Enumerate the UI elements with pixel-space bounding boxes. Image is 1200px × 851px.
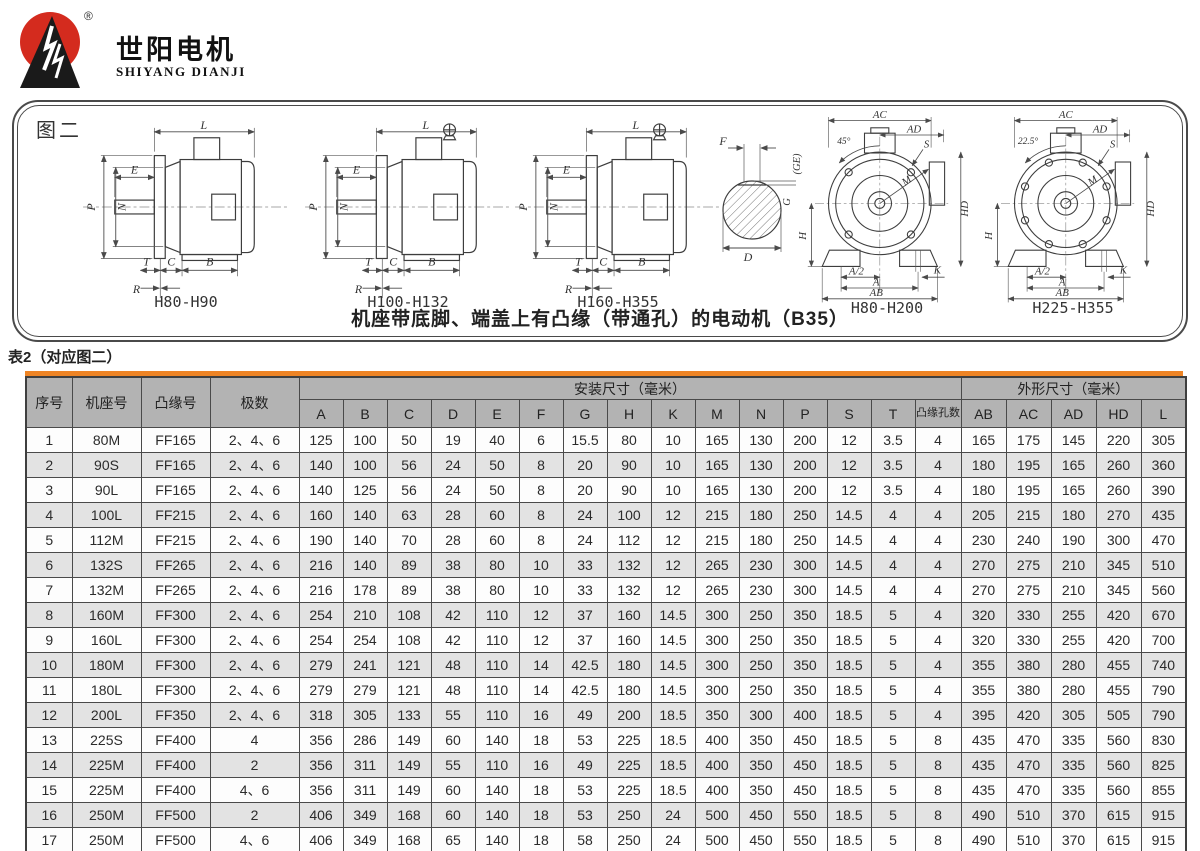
table-cell: 14.5 bbox=[651, 678, 695, 703]
table-row: 180MFF1652、4、6125100501940615.5801016513… bbox=[26, 428, 1186, 453]
table-cell: 70 bbox=[387, 528, 431, 553]
table-cell: 160 bbox=[607, 603, 651, 628]
table-cell: 56 bbox=[387, 478, 431, 503]
table-cell: 60 bbox=[475, 528, 519, 553]
table-cell: 355 bbox=[961, 653, 1006, 678]
table-cell: 8 bbox=[519, 503, 563, 528]
table-cell: 42 bbox=[431, 628, 475, 653]
table-cell: 180 bbox=[607, 653, 651, 678]
dim-label-R: R bbox=[354, 282, 363, 296]
table-row: 16250MFF50024063491686014018532502450045… bbox=[26, 803, 1186, 828]
column-header-flange: 凸缘号 bbox=[141, 377, 210, 428]
table-cell: 140 bbox=[475, 803, 519, 828]
table-cell: 28 bbox=[431, 503, 475, 528]
table-cell: 18.5 bbox=[827, 628, 871, 653]
table-cell: 280 bbox=[1051, 653, 1096, 678]
table-cell: 38 bbox=[431, 553, 475, 578]
table-cell: 560 bbox=[1096, 728, 1141, 753]
dim-label-F: F bbox=[718, 134, 727, 148]
table-cell: 8 bbox=[519, 478, 563, 503]
table-cell: 125 bbox=[299, 428, 343, 453]
table-header-row: 序号 机座号 凸缘号 极数 安装尺寸（毫米） 外形尺寸（毫米） bbox=[26, 377, 1186, 400]
table-cell: 140 bbox=[299, 478, 343, 503]
table-cell: 200 bbox=[783, 453, 827, 478]
table-cell: FF350 bbox=[141, 703, 210, 728]
dim-label-HD: HD bbox=[1145, 201, 1157, 218]
table-cell: 470 bbox=[1006, 728, 1051, 753]
table-cell: 4 bbox=[871, 503, 915, 528]
table-row: 14225MFF400235631114955110164922518.5400… bbox=[26, 753, 1186, 778]
dim-label-T: T bbox=[365, 254, 373, 268]
table-cell: 5 bbox=[871, 653, 915, 678]
table-cell: 140 bbox=[299, 453, 343, 478]
table-cell: 37 bbox=[563, 628, 607, 653]
table-cell: 225S bbox=[72, 728, 141, 753]
table-cell: 615 bbox=[1096, 803, 1141, 828]
table-cell: 8 bbox=[915, 828, 961, 851]
table-cell: 50 bbox=[387, 428, 431, 453]
table-cell: 275 bbox=[1006, 553, 1051, 578]
table-cell: 168 bbox=[387, 828, 431, 851]
table-cell: 210 bbox=[1051, 553, 1096, 578]
table-cell: 400 bbox=[783, 703, 827, 728]
table-cell: 5 bbox=[871, 628, 915, 653]
dim-label-T: T bbox=[575, 254, 583, 268]
dim-label-S: S bbox=[1110, 139, 1116, 151]
table-cell: 265 bbox=[695, 553, 739, 578]
angle-label: 22.5° bbox=[1018, 136, 1039, 147]
table-cell: 140 bbox=[343, 503, 387, 528]
table-cell: 110 bbox=[475, 678, 519, 703]
table-cell: 160M bbox=[72, 603, 141, 628]
table-cell: 2、4、6 bbox=[210, 478, 299, 503]
table-cell: 160 bbox=[299, 503, 343, 528]
table-cell: 450 bbox=[783, 728, 827, 753]
dim-label-C: C bbox=[389, 254, 398, 268]
table-cell: 121 bbox=[387, 678, 431, 703]
table-cell: 8 bbox=[26, 603, 72, 628]
table-cell: 790 bbox=[1141, 678, 1186, 703]
table-cell: 225M bbox=[72, 778, 141, 803]
table-cell: 190 bbox=[299, 528, 343, 553]
table-cell: 15 bbox=[26, 778, 72, 803]
table-cell: 12 bbox=[651, 553, 695, 578]
table-cell: 15.5 bbox=[563, 428, 607, 453]
dim-label-B: B bbox=[206, 254, 213, 268]
table-cell: 250 bbox=[739, 603, 783, 628]
table-cell: 2、4、6 bbox=[210, 428, 299, 453]
table-cell: 241 bbox=[343, 653, 387, 678]
table-cell: 550 bbox=[783, 828, 827, 851]
table-cell: 455 bbox=[1096, 678, 1141, 703]
table-cell: 49 bbox=[563, 753, 607, 778]
table-row: 390LFF1652、4、614012556245082090101651302… bbox=[26, 478, 1186, 503]
dim-label-H: H bbox=[797, 231, 809, 241]
dim-label-T: T bbox=[143, 254, 151, 268]
table-cell: 132 bbox=[607, 553, 651, 578]
dim-label-AB: AB bbox=[1055, 287, 1070, 299]
table-cell: 275 bbox=[1006, 578, 1051, 603]
table-cell: 255 bbox=[1051, 628, 1096, 653]
table-cell: 18.5 bbox=[827, 678, 871, 703]
table-row: 5112MFF2152、4、61901407028608241121221518… bbox=[26, 528, 1186, 553]
table-cell: 180L bbox=[72, 678, 141, 703]
table-cell: 24 bbox=[431, 453, 475, 478]
table-cell: 110 bbox=[475, 703, 519, 728]
table-cell: 90 bbox=[607, 478, 651, 503]
table-cell: 4 bbox=[915, 478, 961, 503]
table-cell: 350 bbox=[783, 678, 827, 703]
table-cell: 168 bbox=[387, 803, 431, 828]
column-header: P bbox=[783, 400, 827, 428]
table-cell: 20 bbox=[563, 478, 607, 503]
dim-label-AC: AC bbox=[872, 109, 888, 121]
table-cell: 178 bbox=[343, 578, 387, 603]
column-header: F bbox=[519, 400, 563, 428]
table-cell: 180 bbox=[961, 453, 1006, 478]
table-cell: 4、6 bbox=[210, 828, 299, 851]
table-cell: 110 bbox=[475, 753, 519, 778]
table-cell: 356 bbox=[299, 753, 343, 778]
table-cell: 89 bbox=[387, 553, 431, 578]
table-cell: 260 bbox=[1096, 478, 1141, 503]
table-cell: 490 bbox=[961, 803, 1006, 828]
table-cell: 300 bbox=[695, 653, 739, 678]
table-cell: 305 bbox=[1051, 703, 1096, 728]
table-cell: 8 bbox=[915, 778, 961, 803]
side-view-h80-h90: L E P N T C B R H80-H90 bbox=[76, 116, 296, 311]
table-cell: 4 bbox=[915, 578, 961, 603]
table-cell: 16 bbox=[519, 703, 563, 728]
table-cell: 330 bbox=[1006, 603, 1051, 628]
table-cell: 560 bbox=[1141, 578, 1186, 603]
table-cell: 10 bbox=[26, 653, 72, 678]
column-header: HD bbox=[1096, 400, 1141, 428]
table-cell: FF165 bbox=[141, 428, 210, 453]
table-cell: 18.5 bbox=[827, 728, 871, 753]
table-cell: 225M bbox=[72, 753, 141, 778]
table-cell: 180M bbox=[72, 653, 141, 678]
table-cell: 80M bbox=[72, 428, 141, 453]
table-cell: 350 bbox=[739, 753, 783, 778]
column-header: K bbox=[651, 400, 695, 428]
table-cell: 53 bbox=[563, 728, 607, 753]
table-cell: 8 bbox=[519, 453, 563, 478]
group-header-install: 安装尺寸（毫米） bbox=[299, 377, 961, 400]
table-cell: 250 bbox=[607, 803, 651, 828]
table-cell: 42 bbox=[431, 603, 475, 628]
table-cell: 2、4、6 bbox=[210, 603, 299, 628]
table-cell: FF215 bbox=[141, 528, 210, 553]
table-cell: 400 bbox=[695, 778, 739, 803]
table-cell: 14.5 bbox=[827, 553, 871, 578]
table-cell: 10 bbox=[519, 553, 563, 578]
dim-label-AB: AB bbox=[869, 287, 884, 299]
table-cell: 80 bbox=[475, 578, 519, 603]
table-cell: 108 bbox=[387, 628, 431, 653]
registered-mark: ® bbox=[84, 9, 93, 23]
table-cell: 130 bbox=[739, 453, 783, 478]
table-cell: FF400 bbox=[141, 753, 210, 778]
table-cell: FF300 bbox=[141, 603, 210, 628]
table-cell: 311 bbox=[343, 753, 387, 778]
table-cell: 420 bbox=[1096, 628, 1141, 653]
figure-caption: 机座带底脚、端盖上有凸缘（带通孔）的电动机（B35） bbox=[351, 304, 849, 331]
dim-label-D: D bbox=[743, 250, 753, 264]
table-cell: 130 bbox=[739, 428, 783, 453]
dim-label-P: P bbox=[516, 203, 530, 211]
table-cell: 335 bbox=[1051, 778, 1096, 803]
table-cell: 2、4、6 bbox=[210, 628, 299, 653]
table-cell: 40 bbox=[475, 428, 519, 453]
table-cell: 435 bbox=[961, 778, 1006, 803]
table-cell: FF300 bbox=[141, 628, 210, 653]
table-cell: 18 bbox=[519, 828, 563, 851]
table-cell: 140 bbox=[475, 778, 519, 803]
table-cell: 18.5 bbox=[827, 778, 871, 803]
table-cell: 110 bbox=[475, 603, 519, 628]
table-row: 9160LFF3002、4、625425410842110123716014.5… bbox=[26, 628, 1186, 653]
dim-label-L: L bbox=[422, 118, 430, 132]
table-cell: 48 bbox=[431, 678, 475, 703]
table-cell: 180 bbox=[961, 478, 1006, 503]
table-cell: 250 bbox=[739, 653, 783, 678]
table-cell: 350 bbox=[783, 603, 827, 628]
table-row: 11180LFF3002、4、6279279121481101442.51801… bbox=[26, 678, 1186, 703]
table-cell: 349 bbox=[343, 828, 387, 851]
table-cell: 740 bbox=[1141, 653, 1186, 678]
table-cell: 60 bbox=[431, 778, 475, 803]
table-cell: 165 bbox=[1051, 453, 1096, 478]
table-cell: 132M bbox=[72, 578, 141, 603]
table-cell: 165 bbox=[961, 428, 1006, 453]
table-cell: 132 bbox=[607, 578, 651, 603]
table-cell: 110 bbox=[475, 653, 519, 678]
table-cell: 42.5 bbox=[563, 653, 607, 678]
table-cell: 330 bbox=[1006, 628, 1051, 653]
table-cell: 500 bbox=[695, 828, 739, 851]
table-cell: 180 bbox=[739, 528, 783, 553]
table-cell: 3.5 bbox=[871, 453, 915, 478]
table-cell: 4 bbox=[915, 553, 961, 578]
table-cell: 33 bbox=[563, 553, 607, 578]
table-cell: 205 bbox=[961, 503, 1006, 528]
table-cell: 450 bbox=[739, 803, 783, 828]
table-cell: 100L bbox=[72, 503, 141, 528]
table-cell: 108 bbox=[387, 603, 431, 628]
table-cell: 12 bbox=[651, 503, 695, 528]
table-cell: 12 bbox=[519, 603, 563, 628]
table-cell: 216 bbox=[299, 553, 343, 578]
table-cell: 18.5 bbox=[827, 828, 871, 851]
table-cell: 3.5 bbox=[871, 478, 915, 503]
table-cell: 12 bbox=[519, 628, 563, 653]
dim-label-E: E bbox=[562, 162, 571, 176]
table-cell: 18.5 bbox=[651, 753, 695, 778]
table-cell: 230 bbox=[961, 528, 1006, 553]
table-cell: 825 bbox=[1141, 753, 1186, 778]
table-cell: 560 bbox=[1096, 753, 1141, 778]
table-cell: 53 bbox=[563, 778, 607, 803]
table-cell: 250 bbox=[783, 503, 827, 528]
table-cell: 10 bbox=[651, 428, 695, 453]
dimension-table: 序号 机座号 凸缘号 极数 安装尺寸（毫米） 外形尺寸（毫米） ABCDEFGH… bbox=[25, 376, 1187, 851]
table-cell: 510 bbox=[1006, 828, 1051, 851]
table-cell: 215 bbox=[695, 528, 739, 553]
table-cell: 4 bbox=[915, 628, 961, 653]
table-cell: 55 bbox=[431, 753, 475, 778]
table-cell: 216 bbox=[299, 578, 343, 603]
table-cell: 14.5 bbox=[827, 503, 871, 528]
dim-label-P: P bbox=[306, 203, 320, 211]
table-cell: 12 bbox=[827, 478, 871, 503]
table-cell: 5 bbox=[871, 753, 915, 778]
table-cell: 4 bbox=[871, 578, 915, 603]
table-cell: 510 bbox=[1141, 553, 1186, 578]
table-cell: 915 bbox=[1141, 828, 1186, 851]
table-cell: 110 bbox=[475, 628, 519, 653]
table-cell: 53 bbox=[563, 803, 607, 828]
table-cell: FF215 bbox=[141, 503, 210, 528]
dim-label-C: C bbox=[599, 254, 608, 268]
table-cell: 406 bbox=[299, 803, 343, 828]
table-cell: 356 bbox=[299, 728, 343, 753]
column-header: E bbox=[475, 400, 519, 428]
table-cell: 149 bbox=[387, 728, 431, 753]
table-row: 13225SFF400435628614960140185322518.5400… bbox=[26, 728, 1186, 753]
table-cell: 160L bbox=[72, 628, 141, 653]
table-cell: 490 bbox=[961, 828, 1006, 851]
table-cell: 270 bbox=[961, 578, 1006, 603]
column-header: A bbox=[299, 400, 343, 428]
table-cell: 6 bbox=[519, 428, 563, 453]
column-header: G bbox=[563, 400, 607, 428]
dim-label-E: E bbox=[352, 162, 361, 176]
table-cell: 90 bbox=[607, 453, 651, 478]
table-cell: 350 bbox=[739, 778, 783, 803]
table-cell: 5 bbox=[871, 603, 915, 628]
table-cell: 60 bbox=[431, 728, 475, 753]
table-row: 15225MFF4004、635631114960140185322518.54… bbox=[26, 778, 1186, 803]
table-cell: 140 bbox=[343, 528, 387, 553]
figure-box: 图二 L E P N T C B R H80-H90 L E bbox=[12, 100, 1188, 342]
table-cell: 2、4、6 bbox=[210, 453, 299, 478]
table-cell: 5 bbox=[26, 528, 72, 553]
table-cell: 140 bbox=[475, 728, 519, 753]
table-cell: 16 bbox=[519, 753, 563, 778]
company-name-en: SHIYANG DIANJI bbox=[116, 64, 246, 80]
table-cell: 14.5 bbox=[827, 528, 871, 553]
table-cell: 311 bbox=[343, 778, 387, 803]
table-cell: 18.5 bbox=[651, 728, 695, 753]
table-cell: 112M bbox=[72, 528, 141, 553]
table-cell: 349 bbox=[343, 803, 387, 828]
table-cell: 420 bbox=[1096, 603, 1141, 628]
table-cell: 132S bbox=[72, 553, 141, 578]
table-cell: 615 bbox=[1096, 828, 1141, 851]
table-cell: 24 bbox=[563, 528, 607, 553]
table-cell: 5 bbox=[871, 828, 915, 851]
dim-label-AC: AC bbox=[1058, 109, 1074, 121]
front-view-h80-h200: AC AD HD H A/2 A AB K M S 45° H80-H200 bbox=[796, 108, 978, 317]
table-cell: 1 bbox=[26, 428, 72, 453]
table-cell: 10 bbox=[519, 578, 563, 603]
table-cell: 2、4、6 bbox=[210, 678, 299, 703]
table-cell: 165 bbox=[695, 478, 739, 503]
column-header: M bbox=[695, 400, 739, 428]
table-cell: 18.5 bbox=[827, 803, 871, 828]
table-cell: 345 bbox=[1096, 578, 1141, 603]
table-cell: 470 bbox=[1141, 528, 1186, 553]
table-cell: 350 bbox=[783, 628, 827, 653]
dim-label-AD: AD bbox=[906, 123, 922, 135]
table-cell: 18.5 bbox=[651, 778, 695, 803]
table-cell: 180 bbox=[739, 503, 783, 528]
table-cell: 24 bbox=[431, 478, 475, 503]
table-cell: 350 bbox=[783, 653, 827, 678]
table-cell: 435 bbox=[961, 728, 1006, 753]
column-header: C bbox=[387, 400, 431, 428]
table-cell: 370 bbox=[1051, 803, 1096, 828]
table-cell: 560 bbox=[1096, 778, 1141, 803]
table-cell: 345 bbox=[1096, 553, 1141, 578]
table-cell: 149 bbox=[387, 753, 431, 778]
table-cell: 100 bbox=[607, 503, 651, 528]
table-cell: 12 bbox=[26, 703, 72, 728]
table-cell: 335 bbox=[1051, 728, 1096, 753]
table-cell: 50 bbox=[475, 453, 519, 478]
table-cell: 4 bbox=[915, 528, 961, 553]
table-cell: 13 bbox=[26, 728, 72, 753]
dim-label-G: G bbox=[782, 198, 793, 206]
table-cell: FF500 bbox=[141, 828, 210, 851]
table-cell: 450 bbox=[783, 753, 827, 778]
table-cell: 420 bbox=[1006, 703, 1051, 728]
table-cell: 24 bbox=[651, 803, 695, 828]
dim-label-K: K bbox=[1119, 265, 1128, 277]
table-cell: 356 bbox=[299, 778, 343, 803]
table-cell: 254 bbox=[299, 628, 343, 653]
table-cell: 195 bbox=[1006, 453, 1051, 478]
table-row: 8160MFF3002、4、625421010842110123716014.5… bbox=[26, 603, 1186, 628]
table-cell: 435 bbox=[961, 753, 1006, 778]
table-cell: 18 bbox=[519, 728, 563, 753]
table-cell: 5 bbox=[871, 678, 915, 703]
table-cell: 286 bbox=[343, 728, 387, 753]
table-cell: 18.5 bbox=[827, 753, 871, 778]
table-cell: 18.5 bbox=[827, 703, 871, 728]
table-cell: 230 bbox=[739, 553, 783, 578]
dim-label-L: L bbox=[200, 118, 208, 132]
table-cell: 2、4、6 bbox=[210, 703, 299, 728]
table-cell: 2 bbox=[210, 753, 299, 778]
table-cell: 14 bbox=[26, 753, 72, 778]
table-cell: 350 bbox=[739, 728, 783, 753]
table-cell: 18.5 bbox=[827, 603, 871, 628]
table-cell: 505 bbox=[1096, 703, 1141, 728]
table-cell: 4 bbox=[915, 453, 961, 478]
dim-label-R: R bbox=[132, 282, 141, 296]
table-cell: 300 bbox=[695, 678, 739, 703]
table-cell: 200 bbox=[783, 428, 827, 453]
table-cell: 60 bbox=[431, 803, 475, 828]
table-cell: 175 bbox=[1006, 428, 1051, 453]
table-cell: 4 bbox=[915, 503, 961, 528]
table-cell: 14.5 bbox=[651, 603, 695, 628]
table-cell: 450 bbox=[783, 778, 827, 803]
table-cell: 279 bbox=[299, 678, 343, 703]
table-cell: 254 bbox=[343, 628, 387, 653]
